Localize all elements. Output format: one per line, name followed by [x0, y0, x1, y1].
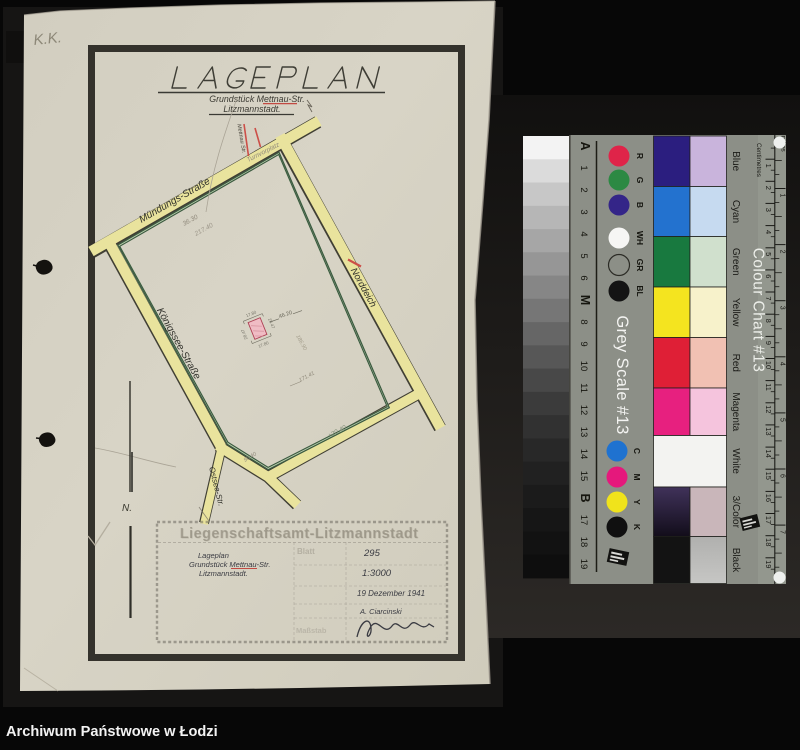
- svg-text:Green: Green: [730, 248, 741, 276]
- svg-text:19: 19: [578, 559, 589, 570]
- svg-text:Archiwum Państwowe w Łodzi: Archiwum Państwowe w Łodzi: [6, 724, 218, 740]
- svg-text:18: 18: [578, 537, 589, 548]
- svg-text:N.: N.: [122, 503, 132, 514]
- svg-text:13: 13: [764, 427, 773, 435]
- svg-text:17: 17: [764, 516, 773, 524]
- svg-text:A. Ciarcinski: A. Ciarcinski: [359, 607, 402, 616]
- svg-text:19: 19: [764, 560, 773, 568]
- svg-text:15: 15: [578, 471, 589, 482]
- svg-text:7: 7: [779, 530, 786, 534]
- svg-text:G: G: [635, 177, 645, 184]
- svg-text:Maßstab: Maßstab: [296, 626, 327, 635]
- svg-text:17: 17: [578, 515, 589, 526]
- svg-text:7: 7: [764, 296, 773, 300]
- svg-text:14: 14: [578, 449, 589, 460]
- svg-text:1: 1: [578, 165, 589, 170]
- svg-text:Centimetres: Centimetres: [755, 143, 762, 177]
- svg-text:B: B: [578, 493, 592, 502]
- svg-text:9: 9: [764, 341, 773, 345]
- svg-text:K.K.: K.K.: [33, 29, 63, 49]
- svg-text:4: 4: [578, 231, 589, 236]
- svg-text:Black: Black: [730, 548, 741, 573]
- svg-text:3/Color: 3/Color: [730, 496, 741, 529]
- svg-text:9: 9: [578, 341, 589, 346]
- svg-text:Blue: Blue: [730, 151, 741, 171]
- svg-text:11: 11: [578, 383, 589, 393]
- svg-text:BL: BL: [635, 285, 645, 296]
- svg-text:11: 11: [764, 383, 773, 391]
- svg-text:M: M: [578, 295, 592, 305]
- svg-text:White: White: [730, 448, 741, 474]
- svg-text:18: 18: [764, 538, 773, 546]
- svg-text:295: 295: [363, 548, 381, 559]
- svg-text:1: 1: [779, 194, 786, 198]
- svg-text:3: 3: [779, 306, 786, 310]
- svg-text:Blatt: Blatt: [297, 547, 315, 556]
- svg-text:10: 10: [764, 361, 773, 369]
- svg-text:Litzmannstadt.: Litzmannstadt.: [199, 569, 248, 578]
- svg-text:8: 8: [764, 319, 773, 323]
- svg-text:8: 8: [578, 319, 589, 324]
- svg-text:Grundstück Mettnau-Str.: Grundstück Mettnau-Str.: [189, 560, 270, 569]
- svg-text:3: 3: [578, 209, 589, 214]
- svg-text:12: 12: [764, 405, 773, 413]
- svg-text:A: A: [578, 141, 592, 150]
- svg-text:Magenta: Magenta: [730, 392, 741, 431]
- svg-text:M: M: [632, 473, 642, 480]
- svg-text:Grundstück Mettnau-Str.: Grundstück Mettnau-Str.: [209, 94, 305, 104]
- svg-text:6: 6: [779, 474, 786, 478]
- svg-text:Y: Y: [632, 499, 642, 505]
- svg-text:B: B: [635, 202, 645, 208]
- svg-text:Red: Red: [730, 354, 741, 372]
- svg-text:GR: GR: [635, 259, 645, 272]
- svg-text:19 Dezember 1941: 19 Dezember 1941: [357, 589, 425, 598]
- svg-text:Cyan: Cyan: [730, 200, 741, 223]
- svg-text:4: 4: [764, 230, 773, 234]
- svg-text:5: 5: [578, 253, 589, 258]
- svg-text:13: 13: [578, 427, 589, 438]
- svg-text:2: 2: [779, 250, 786, 254]
- svg-text:R: R: [635, 153, 645, 159]
- svg-text:15: 15: [764, 472, 773, 480]
- svg-text:16: 16: [764, 494, 773, 502]
- svg-text:6: 6: [764, 274, 773, 278]
- svg-text:1:3000: 1:3000: [362, 568, 392, 579]
- svg-text:14: 14: [764, 449, 773, 457]
- svg-text:Lageplan: Lageplan: [198, 551, 229, 560]
- svg-text:10: 10: [578, 361, 589, 372]
- svg-text:12: 12: [578, 405, 589, 416]
- svg-text:Colour Chart #13: Colour Chart #13: [750, 248, 767, 372]
- svg-text:5: 5: [764, 252, 773, 256]
- svg-text:K: K: [632, 524, 642, 531]
- svg-text:1: 1: [764, 164, 773, 168]
- svg-text:2: 2: [578, 187, 589, 192]
- svg-text:5: 5: [779, 418, 786, 422]
- svg-text:4: 4: [779, 362, 786, 366]
- svg-text:2: 2: [764, 186, 773, 190]
- svg-text:Liegenschaftsamt-Litzmannstadt: Liegenschaftsamt-Litzmannstadt: [180, 527, 418, 543]
- svg-text:3: 3: [764, 208, 773, 212]
- svg-text:Grey Scale #13: Grey Scale #13: [613, 315, 631, 434]
- svg-text:Yellow: Yellow: [730, 298, 741, 327]
- svg-text:C: C: [632, 448, 642, 454]
- svg-text:6: 6: [578, 275, 589, 280]
- svg-text:WH: WH: [635, 231, 645, 245]
